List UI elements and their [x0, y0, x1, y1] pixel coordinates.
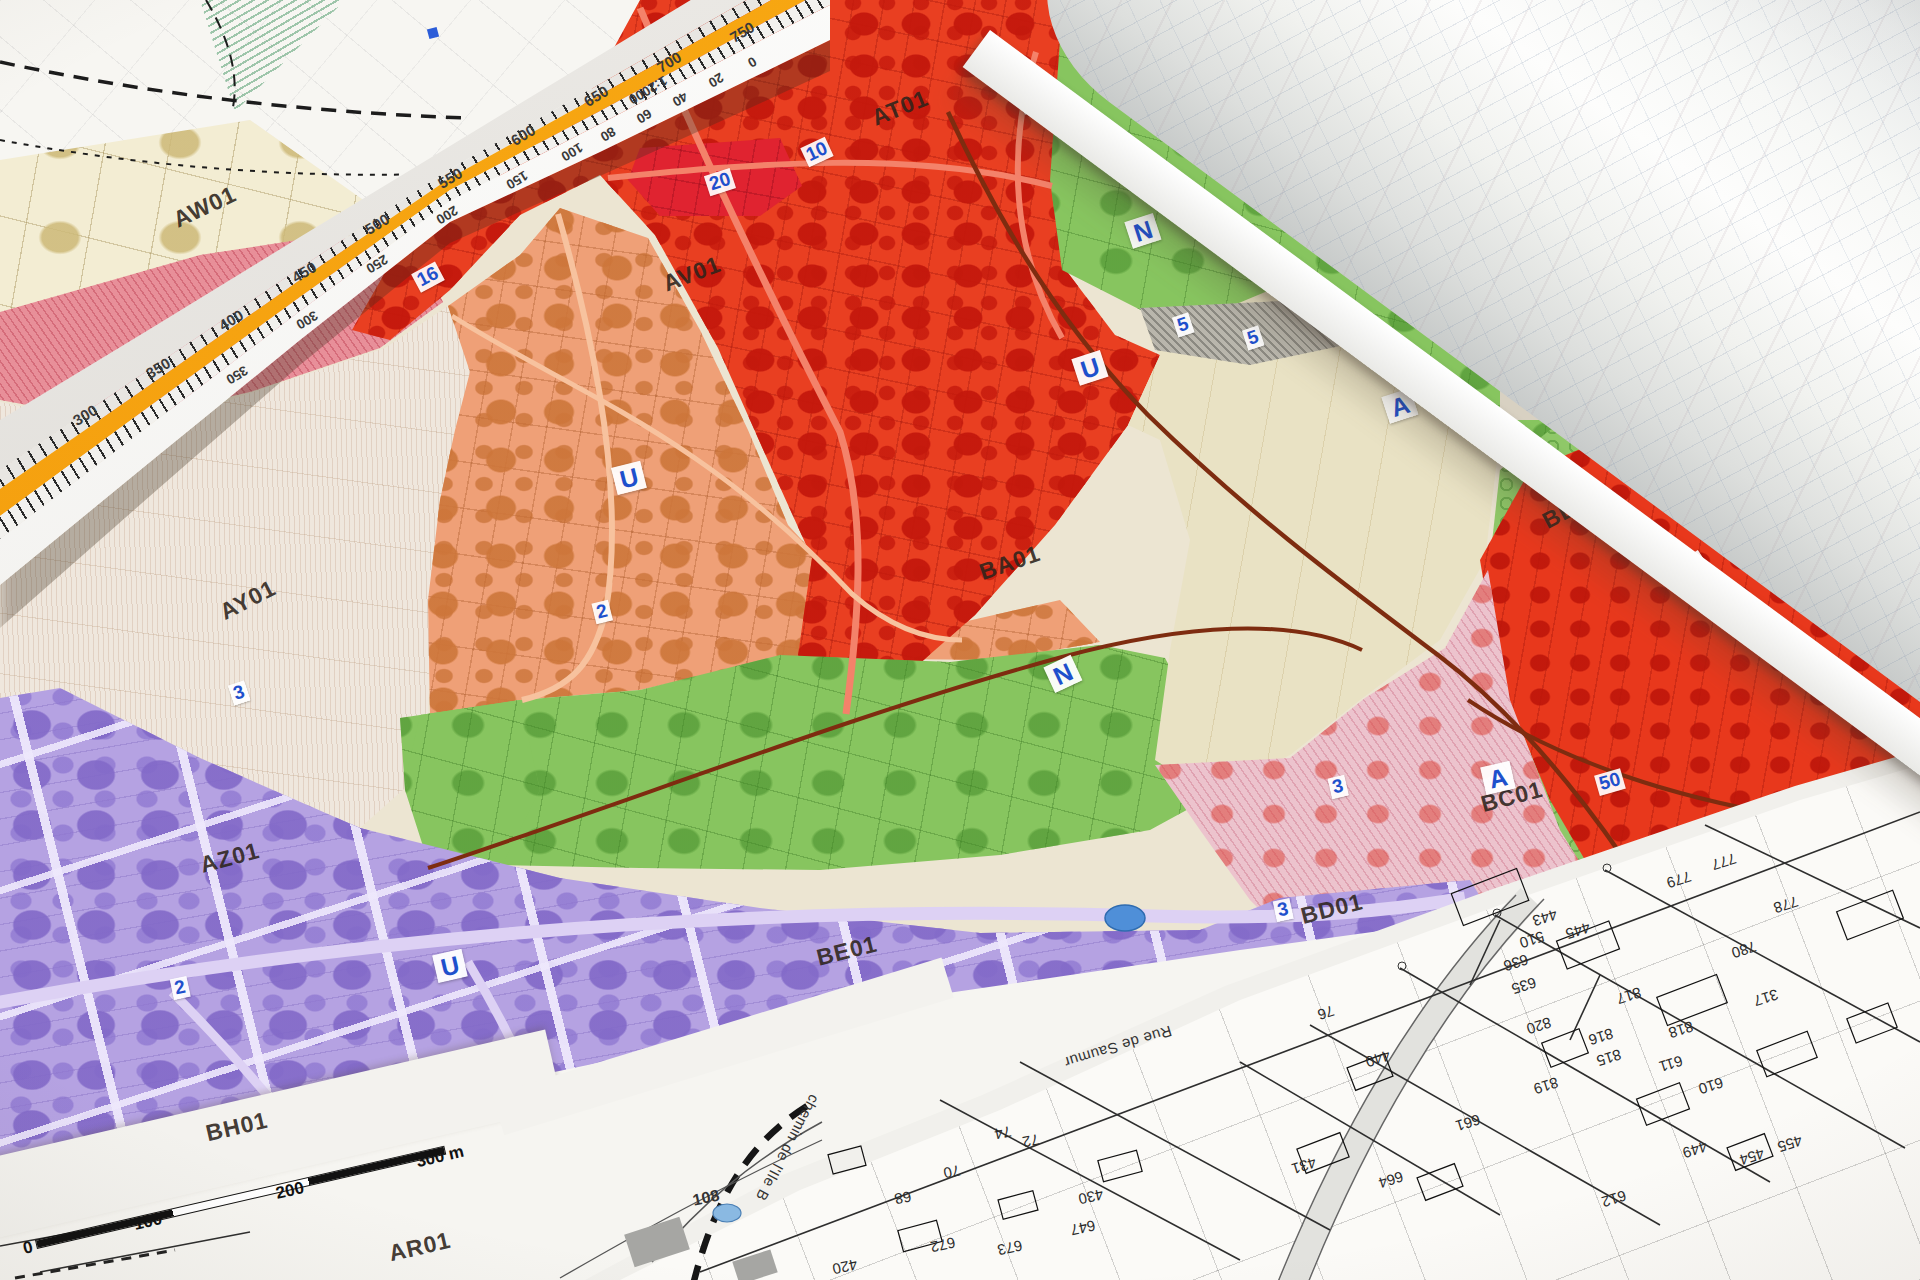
photo-of-zoning-maps: AW01AT01AV01AY01BA01AZ01BB01BC01BD01BE01… — [0, 0, 1920, 1280]
pond — [1105, 905, 1145, 931]
